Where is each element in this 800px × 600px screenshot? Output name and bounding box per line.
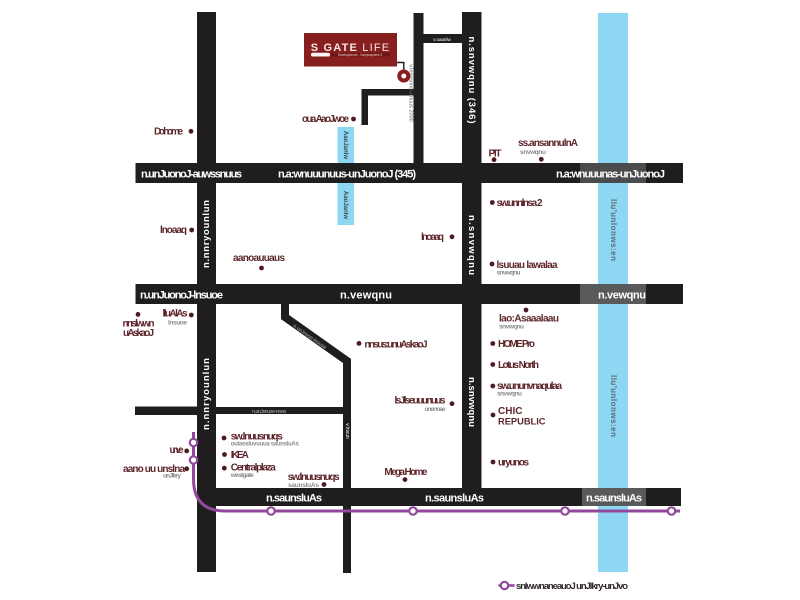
svg-text:n.snvwqnu: n.snvwqnu <box>466 377 477 427</box>
svg-text:uAskaoJ: uAskaoJ <box>123 328 154 339</box>
svg-text:uryunos: uryunos <box>498 458 529 469</box>
svg-text:n.nnryounlun: n.nnryounlun <box>201 200 212 268</box>
svg-text:Lotus North: Lotus North <box>498 360 539 371</box>
svg-text:westgate: westgate <box>230 472 254 479</box>
svg-text:snvwqnu: snvwqnu <box>497 270 521 277</box>
svg-text:n.saunsluAs: n.saunsluAs <box>425 493 484 505</box>
svg-text:n.vewqnu: n.vewqnu <box>340 290 392 302</box>
svg-text:lnoaaq: lnoaaq <box>421 232 444 243</box>
svg-text:n.unJuonoJ-lnsuoe: n.unJuonoJ-lnsuoe <box>140 290 223 302</box>
svg-text:lnoaaq: lnoaaq <box>160 225 187 236</box>
svg-text:IKEA: IKEA <box>231 450 249 461</box>
svg-text:AaoJanlw: AaoJanlw <box>342 191 348 219</box>
svg-text:ss.ansannulnA: ss.ansannulnA <box>518 138 578 149</box>
svg-text:Do home: Do home <box>154 127 183 138</box>
svg-text:snvwqnu: snvwqnu <box>520 149 546 156</box>
svg-text:n.unJsnuoe-nnoa: n.unJsnuoe-nnoa <box>252 409 286 415</box>
svg-text:v.lnsun: v.lnsun <box>344 423 350 439</box>
svg-text:snlwwnaneauoJ unJlkry-unJvo: snlwwnaneauoJ unJlkry-unJvo <box>516 581 628 592</box>
svg-text:sw.unnlnsa 2: sw.unnlnsa 2 <box>497 198 543 209</box>
svg-text:nnsus:unuAskaoJ: nnsus:unuAskaoJ <box>365 340 428 351</box>
svg-text:HOME Pro: HOME Pro <box>498 339 535 350</box>
svg-text:n.unJuonoJ-auwssnuus: n.unJuonoJ-auwssnuus <box>141 169 242 181</box>
svg-text:CHIC: CHIC <box>498 406 522 417</box>
svg-text:lnsuoe: lnsuoe <box>168 320 187 327</box>
svg-text:n.a:wnuuunas-unJuonoJ: n.a:wnuuunas-unJuonoJ <box>556 169 665 181</box>
svg-text:unJlkry: unJlkry <box>163 473 181 480</box>
svg-text:n.vewqnu: n.vewqnu <box>598 290 646 302</box>
svg-text:oulaosluvuuua saunsluAs: oulaosluvuuua saunsluAs <box>231 442 300 448</box>
svg-text:onennae: onennae <box>425 406 446 413</box>
svg-text:Ratchaphruek - Kanjanapisek 2: Ratchaphruek - Kanjanapisek 2 <box>338 53 383 57</box>
svg-text:n.nnryounlun: n.nnryounlun <box>201 358 212 430</box>
svg-text:n.saunsluAs: n.saunsluAs <box>586 493 642 505</box>
svg-text:snvwqnu: snvwqnu <box>499 323 524 330</box>
svg-text:saunsluAs: saunsluAs <box>288 482 319 489</box>
svg-text:AaoJanlw: AaoJanlw <box>342 131 348 159</box>
svg-text:llu'unlonws:en: llu'unlonws:en <box>609 375 618 437</box>
svg-text:unve: unve <box>170 445 184 456</box>
svg-text:oua.AaoJwoe: oua.AaoJwoe <box>302 114 349 125</box>
svg-text:Mega Home: Mega Home <box>384 467 427 478</box>
svg-text:REPUBLIC: REPUBLIC <box>498 417 546 427</box>
svg-text:v.oaanlw: v.oaanlw <box>433 37 451 42</box>
svg-text:aanoauuaus: aanoauuaus <box>233 253 285 264</box>
svg-text:n.snvwqnu (346): n.snvwqnu (346) <box>466 37 477 124</box>
svg-text:n.a:wnuuunuus-unJuonoJ (345): n.a:wnuuunuus-unJuonoJ (345) <box>278 169 416 181</box>
svg-text:snvwqnu: snvwqnu <box>497 391 522 398</box>
svg-text:llu'unlonws:en: llu'unlonws:en <box>609 199 618 261</box>
svg-text:lluAlAs: lluAlAs <box>163 309 188 320</box>
svg-text:n.saunsluAs: n.saunsluAs <box>266 493 322 505</box>
